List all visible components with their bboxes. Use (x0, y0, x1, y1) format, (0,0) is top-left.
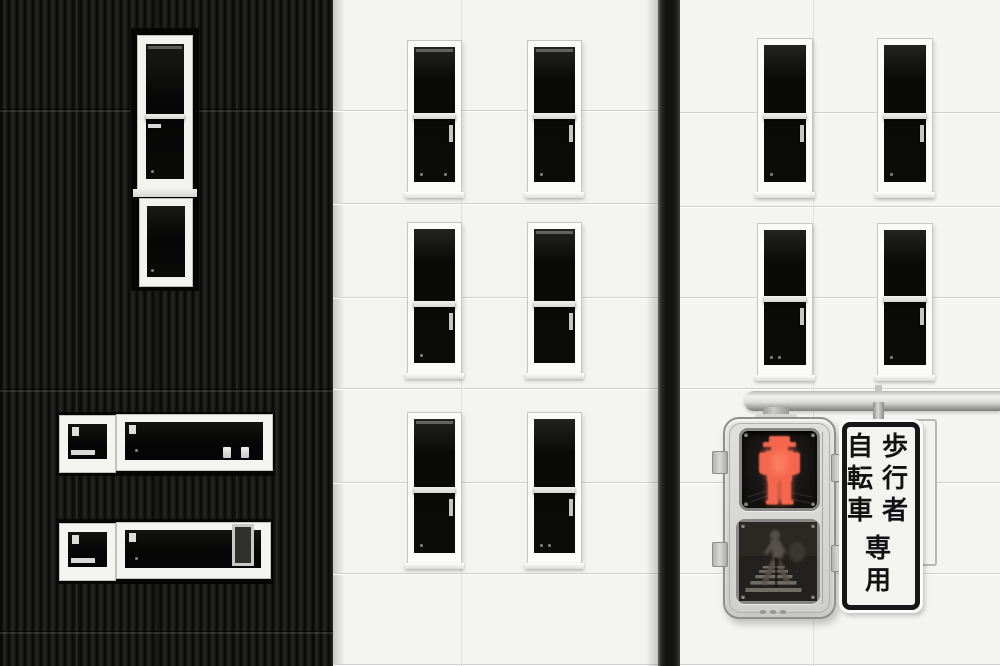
window-glass (884, 230, 926, 365)
window-sill (525, 192, 584, 198)
window-sill (405, 563, 464, 569)
window-sticker (72, 427, 79, 436)
panel-seam (333, 297, 658, 298)
window (116, 414, 273, 471)
window-muntin (764, 113, 806, 119)
sign-column-bottom: 専 用 (864, 532, 892, 596)
window-band (56, 519, 273, 584)
glass-reflection (416, 421, 453, 424)
window-sticker (129, 425, 136, 434)
sign-char: 自 (846, 430, 874, 462)
walking-man-crosswalk-icon (739, 522, 817, 601)
window-lock (420, 544, 423, 547)
red-standing-man-icon (742, 431, 817, 508)
window (59, 415, 116, 473)
panel-seam (333, 573, 658, 574)
window-muntin (534, 487, 575, 493)
window-handle (569, 125, 573, 142)
window-glass (125, 530, 261, 568)
window-handle (148, 124, 161, 128)
white-building-middle (333, 0, 658, 666)
window-muntin (146, 114, 184, 119)
sign-char: 者 (881, 494, 909, 526)
panel-seam (333, 664, 658, 665)
window (877, 223, 933, 377)
window (407, 40, 462, 194)
window-lock (135, 557, 138, 560)
door-reflection (232, 524, 254, 566)
window-handle (449, 499, 453, 516)
window-lock (135, 449, 138, 452)
facade-seam (0, 632, 333, 634)
window-handle (449, 313, 453, 330)
sign-char: 行 (881, 462, 909, 494)
window-glass (146, 44, 184, 179)
panel-seam (333, 388, 658, 389)
window-lock (151, 269, 154, 272)
window-lock (778, 356, 781, 359)
window (59, 523, 116, 581)
window-glass (68, 532, 107, 567)
panel-seam (680, 112, 1000, 113)
window-lock (770, 173, 773, 176)
window (407, 412, 462, 565)
window-muntin (534, 301, 575, 307)
window-handle (569, 499, 573, 516)
hinge-tab (712, 451, 728, 474)
window-handle (449, 125, 453, 142)
sill-object (71, 558, 95, 563)
screw (744, 502, 748, 506)
window (527, 40, 582, 194)
sign-char: 車 (846, 494, 874, 526)
window-glass (534, 419, 575, 553)
window-glass (414, 47, 455, 182)
panel-seam (333, 482, 658, 483)
window-sill (525, 373, 584, 379)
screw (811, 502, 815, 506)
window-muntin (884, 296, 926, 302)
window-muntin (764, 296, 806, 302)
window-handle (800, 125, 804, 142)
window (116, 522, 271, 579)
window-sill (405, 192, 464, 198)
window (877, 38, 933, 194)
sign-mount-stub (875, 385, 882, 392)
window-handle (920, 308, 924, 325)
pedestrian-bicycle-sign: 自 転 車 歩 行 者 専 用 (839, 419, 923, 613)
glass-reflection (536, 49, 573, 52)
window-glass (534, 229, 575, 363)
screw (811, 595, 815, 599)
sign-column-right: 歩 行 者 (881, 430, 909, 526)
window-glass (125, 422, 263, 460)
sign-char: 転 (846, 462, 874, 494)
window-handle (569, 313, 573, 330)
window-lock (890, 356, 893, 359)
window-muntin (414, 301, 455, 307)
window-band (56, 412, 275, 476)
vent (780, 610, 786, 614)
window (137, 35, 193, 190)
window-muntin (884, 113, 926, 119)
screw (741, 524, 745, 528)
window-lock (548, 544, 551, 547)
window-handle (800, 308, 804, 325)
corner-shadow (333, 0, 345, 666)
window-glass (414, 229, 455, 363)
dark-building-facade (0, 0, 333, 666)
window-glass (884, 45, 926, 182)
window-muntin (534, 113, 575, 119)
window-glass (764, 230, 806, 365)
gap-shadow (646, 0, 658, 666)
window-glass (68, 424, 107, 459)
building-gap (658, 0, 680, 666)
window-glass (147, 206, 185, 277)
window-sill (755, 192, 815, 198)
window-sill (405, 373, 464, 379)
vent (770, 610, 776, 614)
window-sill (525, 563, 584, 569)
screw (744, 433, 748, 437)
street-photo-scene: 自 転 車 歩 行 者 専 用 (0, 0, 1000, 666)
facade-seam (0, 390, 333, 392)
vent (760, 610, 766, 614)
window-sill (133, 189, 197, 197)
window-sticker (129, 533, 136, 542)
walk-lens (736, 519, 820, 604)
window (527, 222, 582, 375)
window-handle (920, 125, 924, 142)
window-glass (534, 47, 575, 182)
window-sill (875, 192, 935, 198)
window (139, 198, 193, 287)
panel-seam (333, 110, 658, 111)
panel-seam (680, 297, 1000, 298)
window-muntin (414, 113, 455, 119)
hinge-tab (712, 542, 728, 567)
window-lock (420, 354, 423, 357)
window-opening (131, 28, 199, 291)
window-lock (444, 173, 447, 176)
panel-seam (680, 664, 1000, 665)
sill-object (71, 450, 95, 455)
panel-seam (333, 203, 658, 204)
glass-reflection (536, 231, 573, 234)
pedestrian-signal-head (723, 417, 836, 619)
screw (811, 524, 815, 528)
window (757, 223, 813, 377)
panel-seam (680, 206, 1000, 207)
panel-seam (680, 388, 1000, 389)
window-sticker (72, 535, 79, 544)
cup (241, 447, 249, 458)
cup (223, 447, 231, 458)
sign-char: 歩 (881, 430, 909, 462)
window-lock (420, 173, 423, 176)
screw (811, 433, 815, 437)
window (407, 222, 462, 375)
window-muntin (414, 487, 455, 493)
window-glass (414, 419, 455, 553)
glass-reflection (416, 49, 453, 52)
window-sill (875, 375, 935, 381)
glass-reflection (148, 46, 182, 49)
window (757, 38, 813, 194)
window-glass (764, 45, 806, 182)
window-lock (890, 173, 893, 176)
sign-char: 専 (864, 532, 892, 564)
window-sill (755, 375, 815, 381)
window-lock (540, 173, 543, 176)
window-lock (770, 356, 773, 359)
screw (741, 595, 745, 599)
window-lock (540, 544, 543, 547)
window-lock (151, 170, 154, 173)
sign-char: 用 (864, 564, 892, 596)
sign-column-left: 自 転 車 (846, 430, 874, 526)
red-man-lens (739, 428, 820, 511)
window (527, 412, 582, 565)
